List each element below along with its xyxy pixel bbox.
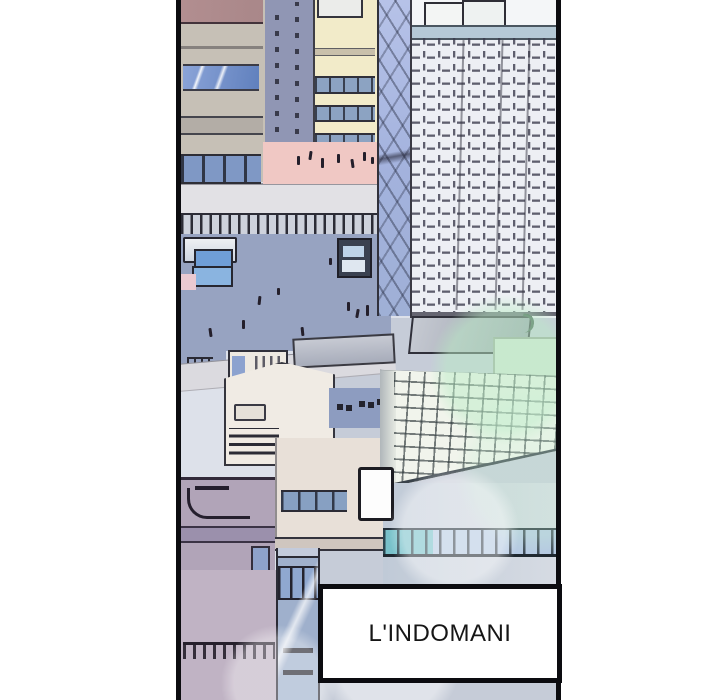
pedestrian-mark <box>242 320 245 329</box>
roof-edge-band <box>181 526 275 543</box>
pedestrian-mark <box>366 305 369 316</box>
teal-windows <box>383 530 433 554</box>
car-roof <box>342 260 365 272</box>
pink-roof <box>181 0 263 24</box>
car-windshield <box>343 246 364 257</box>
rooftop-marking <box>187 488 250 519</box>
glass-window-band <box>278 566 318 600</box>
rooftop-box <box>317 0 363 18</box>
louver-vents <box>229 428 279 460</box>
purple-rooftop-building <box>181 477 275 575</box>
caption-text: L'INDOMANI <box>369 620 512 648</box>
street-plaza <box>181 234 391 351</box>
facade-top-band <box>278 548 318 558</box>
crosswalk-patch <box>181 274 196 290</box>
window-band <box>315 76 375 94</box>
thin-band <box>315 48 375 56</box>
pedestrian-mark <box>308 151 312 160</box>
pedestrian-mark <box>371 157 374 164</box>
parked-car-dark <box>337 238 372 278</box>
pedestrian-mark <box>208 328 212 337</box>
gray-band <box>181 116 263 135</box>
window-pair <box>337 404 343 410</box>
webtoon-page: L'INDOMANI <box>0 0 720 700</box>
pedestrian-mark <box>363 152 366 161</box>
cream-yellow-building <box>313 0 381 148</box>
pedestrian-mark <box>258 296 262 305</box>
purple-lower-building <box>181 570 276 700</box>
window-strip <box>281 490 347 512</box>
pedestrian-mark <box>301 327 305 336</box>
window-dash-column <box>295 2 299 150</box>
window-row <box>181 154 261 184</box>
window-dash-column <box>275 4 279 148</box>
window-pair <box>359 401 365 407</box>
sidewalk-strip <box>181 183 391 217</box>
pedestrian-mark <box>297 156 300 165</box>
ledge-bar <box>283 648 313 653</box>
caption-box: L'INDOMANI <box>318 584 562 683</box>
parked-car-lightblue <box>192 266 233 287</box>
pedestrian-mark <box>321 158 324 168</box>
rooftop-marking-bar <box>195 486 229 490</box>
pedestrian-mark <box>277 288 280 295</box>
pedestrian-mark <box>329 258 332 265</box>
rooftop-door <box>234 404 266 421</box>
tall-building-facade <box>410 0 559 318</box>
bluegray-building <box>265 0 313 152</box>
pedestrian-mark <box>350 159 354 168</box>
pedestrian-mark <box>337 154 340 163</box>
beige-building <box>181 0 267 182</box>
window-band <box>315 105 375 122</box>
pedestrian-mark <box>355 309 360 318</box>
ledge-bar <box>283 670 313 675</box>
blue-braced-wall <box>377 0 412 316</box>
pink-sidewalk <box>263 142 377 184</box>
blue-facade-strip <box>276 548 320 700</box>
window-band-row <box>383 528 557 557</box>
dashed-windows-pattern <box>412 38 559 312</box>
facade-line <box>181 46 263 49</box>
roof-railing <box>183 642 275 659</box>
blue-glass-band <box>183 64 259 91</box>
pedestrian-mark <box>347 302 350 311</box>
gray-roof-slab <box>292 333 395 368</box>
lower-right-facade <box>383 483 557 588</box>
white-sign-panel <box>358 467 394 521</box>
